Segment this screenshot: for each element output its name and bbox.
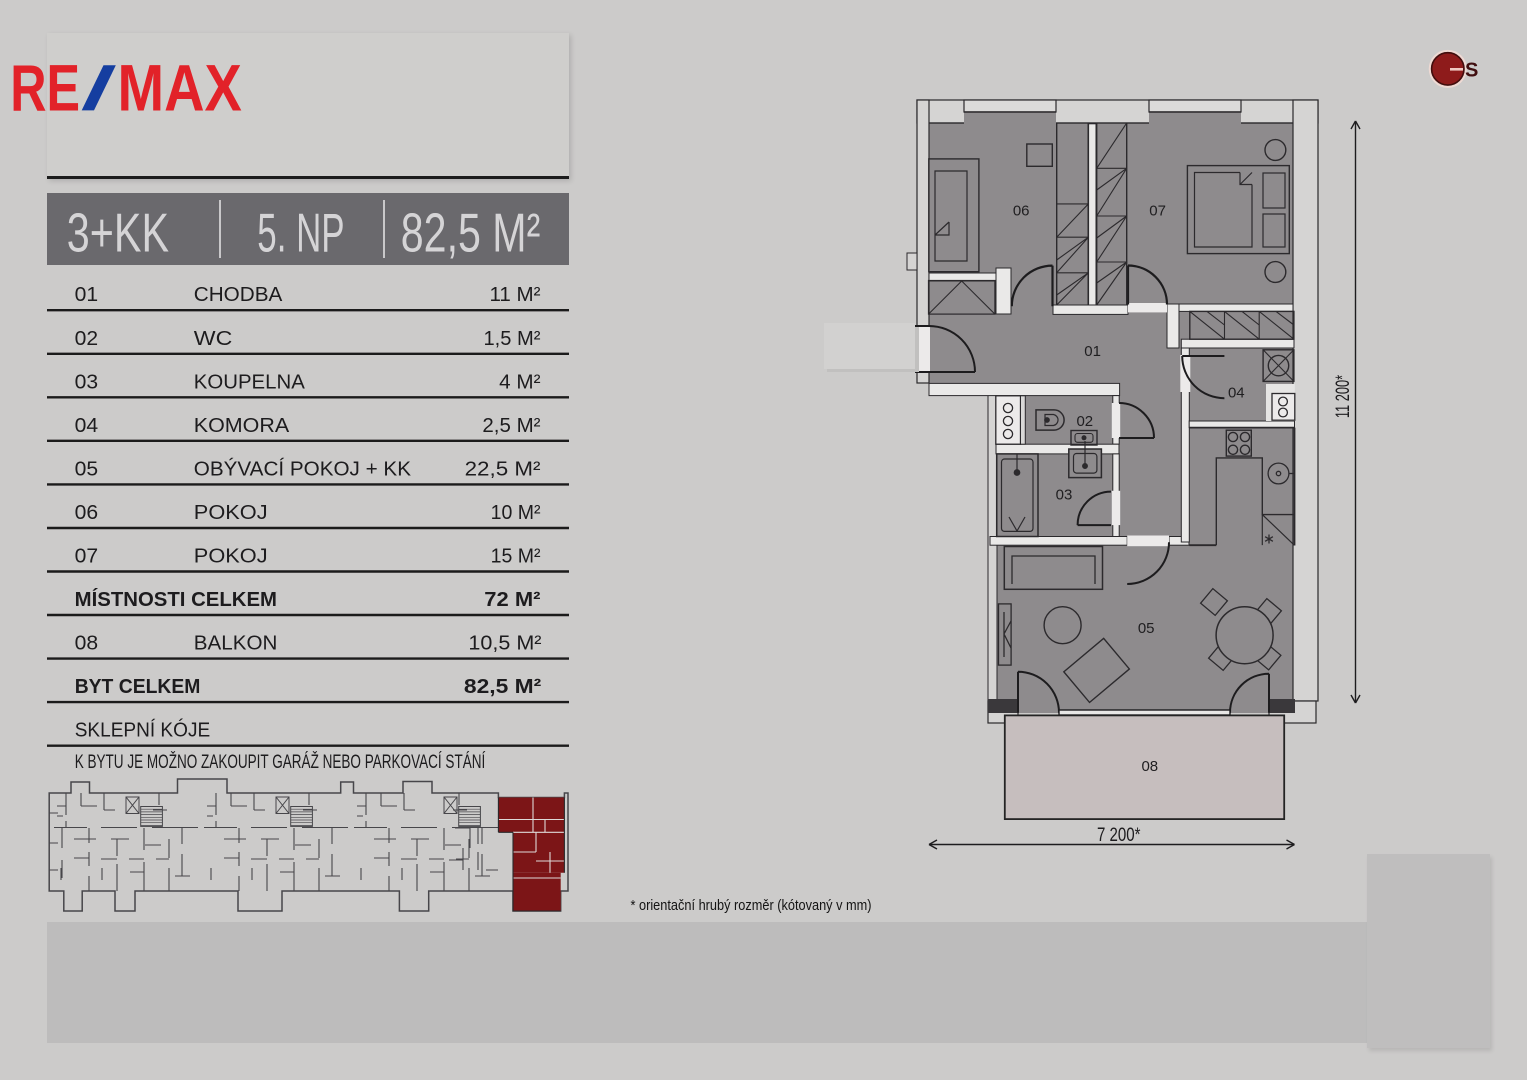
svg-text:1,5 M²: 1,5 M² — [484, 328, 541, 350]
svg-text:06: 06 — [75, 502, 99, 524]
svg-text:K BYTU JE MOŽNO ZAKOUPIT GARÁŽ: K BYTU JE MOŽNO ZAKOUPIT GARÁŽ NEBO PARK… — [75, 751, 486, 773]
svg-text:10,5 M²: 10,5 M² — [468, 633, 541, 655]
svg-text:10 M²: 10 M² — [491, 502, 541, 524]
svg-text:* orientační hrubý rozměr (kót: * orientační hrubý rozměr (kótovaný v mm… — [631, 898, 872, 914]
svg-text:22,5 M²: 22,5 M² — [465, 458, 541, 480]
svg-text:82,5 M²: 82,5 M² — [401, 202, 541, 264]
svg-text:02: 02 — [1076, 413, 1093, 430]
svg-text:OBÝVACÍ POKOJ + KK: OBÝVACÍ POKOJ + KK — [194, 457, 412, 480]
svg-text:03: 03 — [1056, 487, 1073, 504]
svg-text:11 M²: 11 M² — [490, 284, 541, 306]
svg-text:POKOJ: POKOJ — [194, 502, 268, 524]
svg-text:5. NP: 5. NP — [257, 202, 344, 264]
svg-text:2,5 M²: 2,5 M² — [482, 415, 540, 437]
svg-text:MÍSTNOSTI CELKEM: MÍSTNOSTI CELKEM — [75, 588, 277, 611]
svg-text:07: 07 — [75, 546, 99, 568]
svg-text:03: 03 — [75, 371, 99, 393]
svg-text:7 200*: 7 200* — [1097, 825, 1141, 846]
svg-text:01: 01 — [75, 284, 99, 306]
svg-text:05: 05 — [1138, 620, 1155, 637]
svg-text:CHODBA: CHODBA — [194, 284, 283, 306]
svg-text:BYT CELKEM: BYT CELKEM — [75, 676, 201, 698]
svg-text:KOUPELNA: KOUPELNA — [194, 371, 306, 393]
svg-text:04: 04 — [1228, 384, 1245, 401]
svg-text:72 M²: 72 M² — [484, 589, 541, 611]
svg-text:11 200*: 11 200* — [1333, 374, 1354, 418]
svg-text:4 M²: 4 M² — [499, 371, 541, 393]
svg-text:04: 04 — [75, 415, 99, 437]
svg-text:07: 07 — [1149, 203, 1166, 220]
svg-text:SKLEPNÍ KÓJE: SKLEPNÍ KÓJE — [75, 719, 211, 742]
svg-text:82,5 M²: 82,5 M² — [464, 676, 542, 698]
svg-text:02: 02 — [75, 328, 99, 350]
svg-text:POKOJ: POKOJ — [194, 546, 268, 568]
svg-text:08: 08 — [75, 633, 99, 655]
svg-text:KOMORA: KOMORA — [194, 415, 290, 437]
svg-text:08: 08 — [1141, 758, 1158, 775]
svg-text:05: 05 — [75, 458, 99, 480]
svg-text:01: 01 — [1084, 343, 1101, 360]
svg-text:WC: WC — [194, 328, 233, 350]
svg-text:15 M²: 15 M² — [491, 546, 541, 568]
svg-text:06: 06 — [1013, 203, 1030, 220]
svg-text:3+KK: 3+KK — [67, 202, 169, 264]
svg-text:S: S — [1465, 60, 1478, 82]
svg-text:BALKON: BALKON — [194, 633, 278, 655]
